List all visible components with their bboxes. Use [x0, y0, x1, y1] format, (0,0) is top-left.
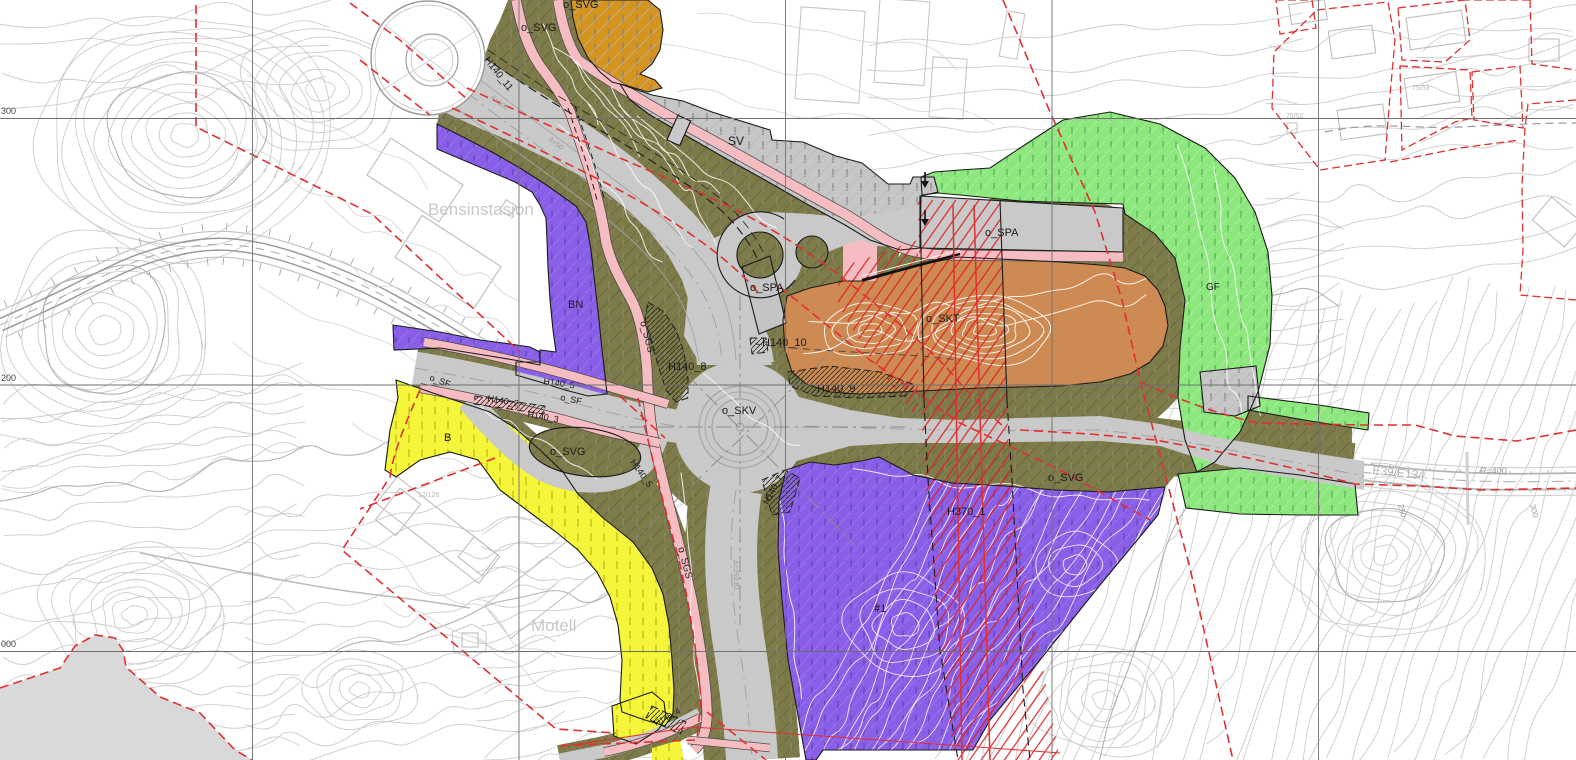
svg-text:Motell: Motell — [531, 616, 576, 635]
svg-text:300: 300 — [1, 106, 16, 116]
svg-text:o_SVG: o_SVG — [521, 22, 556, 34]
svg-text:75/53: 75/53 — [1412, 85, 1430, 92]
svg-text:SV: SV — [728, 134, 744, 148]
svg-text:o_SKV: o_SKV — [722, 405, 757, 417]
svg-text:000: 000 — [1, 639, 16, 649]
svg-text:Bensinstasjon: Bensinstasjon — [428, 200, 534, 219]
svg-text:o_SPA: o_SPA — [750, 282, 784, 294]
svg-text:R=400: R=400 — [1480, 466, 1507, 476]
svg-text:H140_10: H140_10 — [762, 337, 807, 349]
svg-text:H370_1: H370_1 — [947, 506, 986, 518]
svg-text:H140_8: H140_8 — [668, 361, 707, 373]
svg-text:BN: BN — [568, 299, 583, 311]
svg-text:o_SKT: o_SKT — [926, 313, 960, 325]
svg-text:GF: GF — [1206, 282, 1220, 293]
svg-text:o_SVG: o_SVG — [563, 0, 598, 11]
svg-text:200: 200 — [1, 373, 16, 383]
svg-text:o_SPA: o_SPA — [985, 227, 1019, 239]
svg-text:#1: #1 — [874, 603, 886, 615]
svg-text:o_SVG: o_SVG — [1048, 472, 1083, 484]
svg-text:12/125: 12/125 — [418, 492, 440, 499]
svg-text:B: B — [444, 432, 451, 444]
svg-text:o_SVG: o_SVG — [550, 446, 585, 458]
